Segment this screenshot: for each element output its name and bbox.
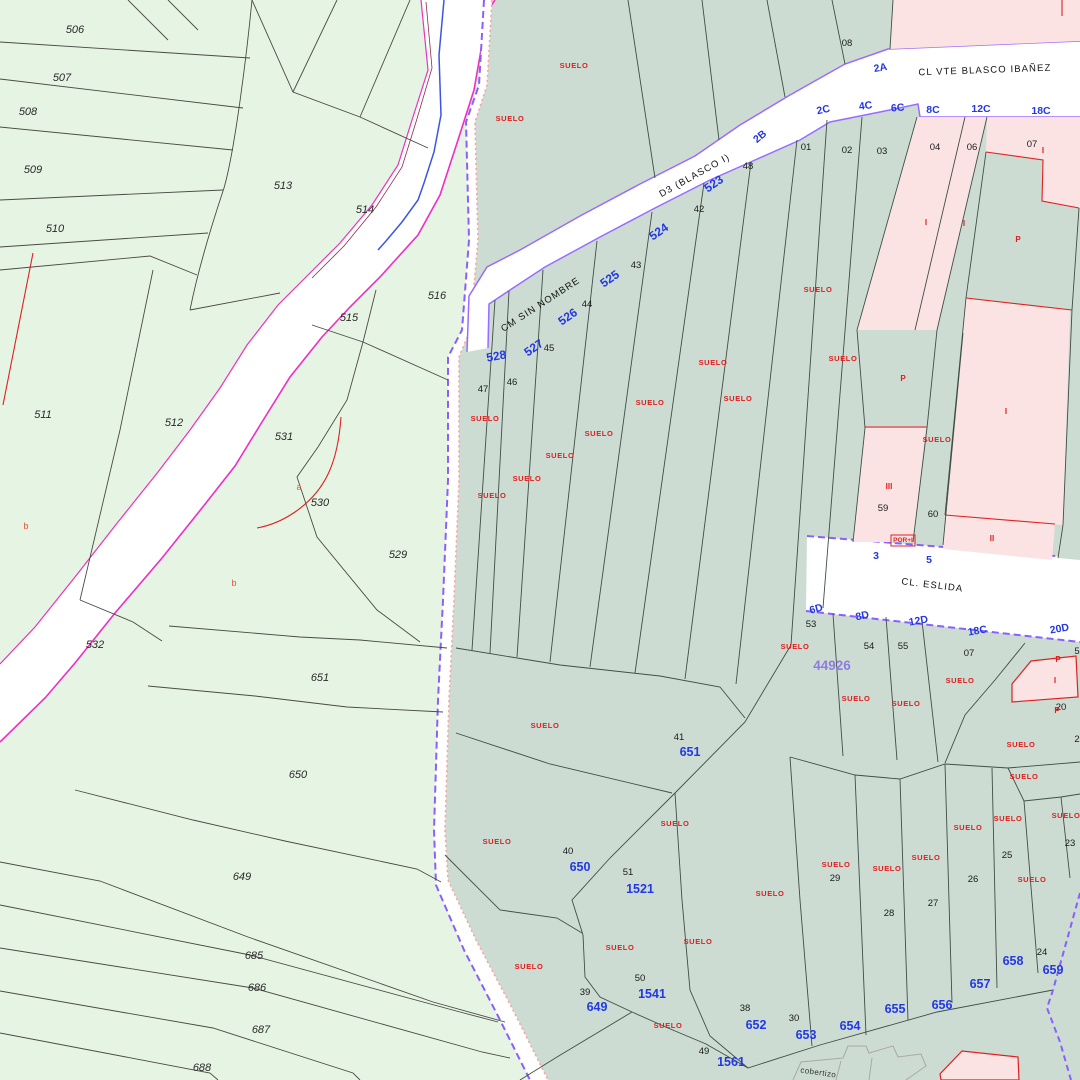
suelo-label: SUELO — [515, 962, 544, 971]
parcel-number-532: 532 — [86, 639, 104, 651]
lot-number-27: 27 — [928, 898, 939, 909]
portal-number-8C: 8C — [926, 104, 940, 116]
construction-mark-III: III — [886, 482, 893, 491]
area-number-651: 651 — [680, 745, 701, 759]
portal-number-2A: 2A — [873, 61, 889, 75]
area-number-658: 658 — [1003, 954, 1024, 968]
suelo-label: SUELO — [546, 451, 575, 460]
lot-number-28: 28 — [884, 908, 895, 919]
subparcel-letter-a: a — [296, 482, 301, 492]
subparcel-letter-b: b — [231, 578, 236, 588]
suelo-label: SUELO — [483, 837, 512, 846]
lot-number-25: 25 — [1002, 850, 1013, 861]
suelo-label: SUELO — [946, 676, 975, 685]
parcel-number-506: 506 — [66, 24, 85, 36]
construction-mark-I: I — [963, 219, 965, 228]
construction-mark-P: P — [900, 374, 906, 383]
lot-number-02: 02 — [842, 145, 853, 156]
portal-number-3: 3 — [873, 550, 879, 562]
lot-number-39: 39 — [580, 987, 591, 998]
suelo-label: SUELO — [513, 474, 542, 483]
parcel-number-651: 651 — [311, 672, 329, 684]
lot-number-07: 07 — [1027, 139, 1038, 150]
parcel-number-515: 515 — [340, 312, 359, 324]
suelo-label: SUELO — [531, 721, 560, 730]
suelo-label: SUELO — [724, 394, 753, 403]
lot-number-01: 01 — [801, 142, 812, 153]
lot-number-47: 47 — [478, 384, 489, 395]
lot-number-08: 08 — [842, 38, 853, 49]
lot-number-04: 04 — [930, 142, 941, 153]
parcel-number-685: 685 — [245, 950, 264, 962]
subparcel-letter-b: b — [23, 521, 28, 531]
suelo-label: SUELO — [699, 358, 728, 367]
area-number-650: 650 — [570, 860, 591, 874]
suelo-label: SUELO — [684, 937, 713, 946]
map-canvas[interactable]: 5065075085095105115125135145155165295305… — [0, 0, 1080, 1080]
construction-mark-II: II — [990, 534, 994, 543]
parcel-number-529: 529 — [389, 549, 407, 561]
construction-mark-I: I — [1042, 146, 1044, 155]
construction-mark-I: I — [1054, 676, 1056, 685]
portal-number-4C: 4C — [858, 99, 873, 113]
lot-number-29: 29 — [830, 873, 841, 884]
construction-mark-I: I — [925, 218, 927, 227]
lot-number-07: 07 — [964, 648, 975, 659]
parcel-number-686: 686 — [248, 982, 267, 994]
parcel-number-649: 649 — [233, 871, 251, 883]
suelo-label: SUELO — [1010, 772, 1039, 781]
suelo-label: SUELO — [923, 435, 952, 444]
cadastral-map-viewport[interactable]: 5065075085095105115125135145155165295305… — [0, 0, 1080, 1080]
lot-number-54: 54 — [864, 641, 875, 652]
parcel-number-514: 514 — [356, 204, 374, 216]
area-number-653: 653 — [796, 1028, 817, 1042]
portal-number-5: 5 — [926, 554, 932, 566]
area-number-659: 659 — [1043, 963, 1064, 977]
area-number-655: 655 — [885, 1002, 906, 1016]
por-label: POR+I — [893, 537, 913, 544]
lot-number-48: 48 — [743, 161, 754, 172]
lot-number-26: 26 — [968, 874, 979, 885]
lot-number-03: 03 — [877, 146, 888, 157]
lot-number-23: 23 — [1065, 838, 1076, 849]
suelo-label: SUELO — [606, 943, 635, 952]
suelo-label: SUELO — [654, 1021, 683, 1030]
parcel-number-511: 511 — [34, 409, 52, 421]
parcel-number-688: 688 — [193, 1062, 212, 1074]
suelo-label: SUELO — [471, 414, 500, 423]
suelo-label: SUELO — [829, 354, 858, 363]
parcel-number-650: 650 — [289, 769, 308, 781]
suelo-label: SUELO — [842, 694, 871, 703]
area-number-1521: 1521 — [626, 882, 654, 896]
area-number-657: 657 — [970, 977, 991, 991]
parcel-number-530: 530 — [311, 497, 330, 509]
suelo-label: SUELO — [892, 699, 921, 708]
suelo-label: SUELO — [560, 61, 589, 70]
parcel-number-513: 513 — [274, 180, 293, 192]
admin-code-44926: 44926 — [813, 658, 851, 673]
suelo-label: SUELO — [661, 819, 690, 828]
suelo-label: SUELO — [822, 860, 851, 869]
lot-number-60: 60 — [928, 509, 939, 520]
parcel-number-512: 512 — [165, 417, 183, 429]
lot-number-51: 51 — [623, 867, 634, 878]
area-number-654: 654 — [840, 1019, 861, 1033]
lot-number-50: 50 — [635, 973, 646, 984]
parcel-number-531: 531 — [275, 431, 293, 443]
suelo-label: SUELO — [804, 285, 833, 294]
construction-mark-P: P — [1015, 235, 1021, 244]
suelo-label: SUELO — [636, 398, 665, 407]
suelo-label: SUELO — [1007, 740, 1036, 749]
lot-number-44: 44 — [582, 299, 593, 310]
portal-number-18C: 18C — [1031, 105, 1051, 117]
lot-number-30: 30 — [789, 1013, 800, 1024]
suelo-label: SUELO — [1052, 811, 1080, 820]
suelo-label: SUELO — [873, 864, 902, 873]
lot-number-42: 42 — [694, 204, 705, 215]
area-number-1561: 1561 — [717, 1055, 745, 1069]
parcel-number-508: 508 — [19, 106, 38, 118]
suelo-label: SUELO — [756, 889, 785, 898]
lot-number-49: 49 — [699, 1046, 710, 1057]
parcel-number-687: 687 — [252, 1024, 271, 1036]
area-number-649: 649 — [587, 1000, 608, 1014]
lot-number-06: 06 — [967, 142, 978, 153]
suelo-label: SUELO — [912, 853, 941, 862]
construction-mark-P: P — [1055, 655, 1061, 664]
lot-number-5: 5 — [1074, 646, 1079, 657]
suelo-label: SUELO — [585, 429, 614, 438]
construction-mark-I: I — [1005, 407, 1007, 416]
lot-number-24: 24 — [1037, 947, 1048, 958]
parcel-number-516: 516 — [428, 290, 447, 302]
suelo-label: SUELO — [781, 642, 810, 651]
portal-number-12C: 12C — [971, 103, 991, 115]
area-number-1541: 1541 — [638, 987, 666, 1001]
area-number-656: 656 — [932, 998, 953, 1012]
construction-mark-P: P — [1054, 706, 1060, 715]
suelo-label: SUELO — [478, 491, 507, 500]
lot-number-59: 59 — [878, 503, 889, 514]
lot-number-55: 55 — [898, 641, 909, 652]
parcel-number-507: 507 — [53, 72, 72, 84]
suelo-label: SUELO — [1018, 875, 1047, 884]
lot-number-46: 46 — [507, 377, 518, 388]
area-number-652: 652 — [746, 1018, 767, 1032]
suelo-label: SUELO — [994, 814, 1023, 823]
parcel-number-509: 509 — [24, 164, 42, 176]
lot-number-53: 53 — [806, 619, 817, 630]
lot-number-43: 43 — [631, 260, 642, 271]
lot-number-41: 41 — [674, 732, 685, 743]
portal-number-6C: 6C — [891, 101, 906, 114]
suelo-label: SUELO — [954, 823, 983, 832]
lot-number-45: 45 — [544, 343, 555, 354]
lot-number-40: 40 — [563, 846, 574, 857]
lot-number-2: 2 — [1074, 734, 1079, 745]
parcel-number-510: 510 — [46, 223, 65, 235]
lot-number-38: 38 — [740, 1003, 751, 1014]
suelo-label: SUELO — [496, 114, 525, 123]
